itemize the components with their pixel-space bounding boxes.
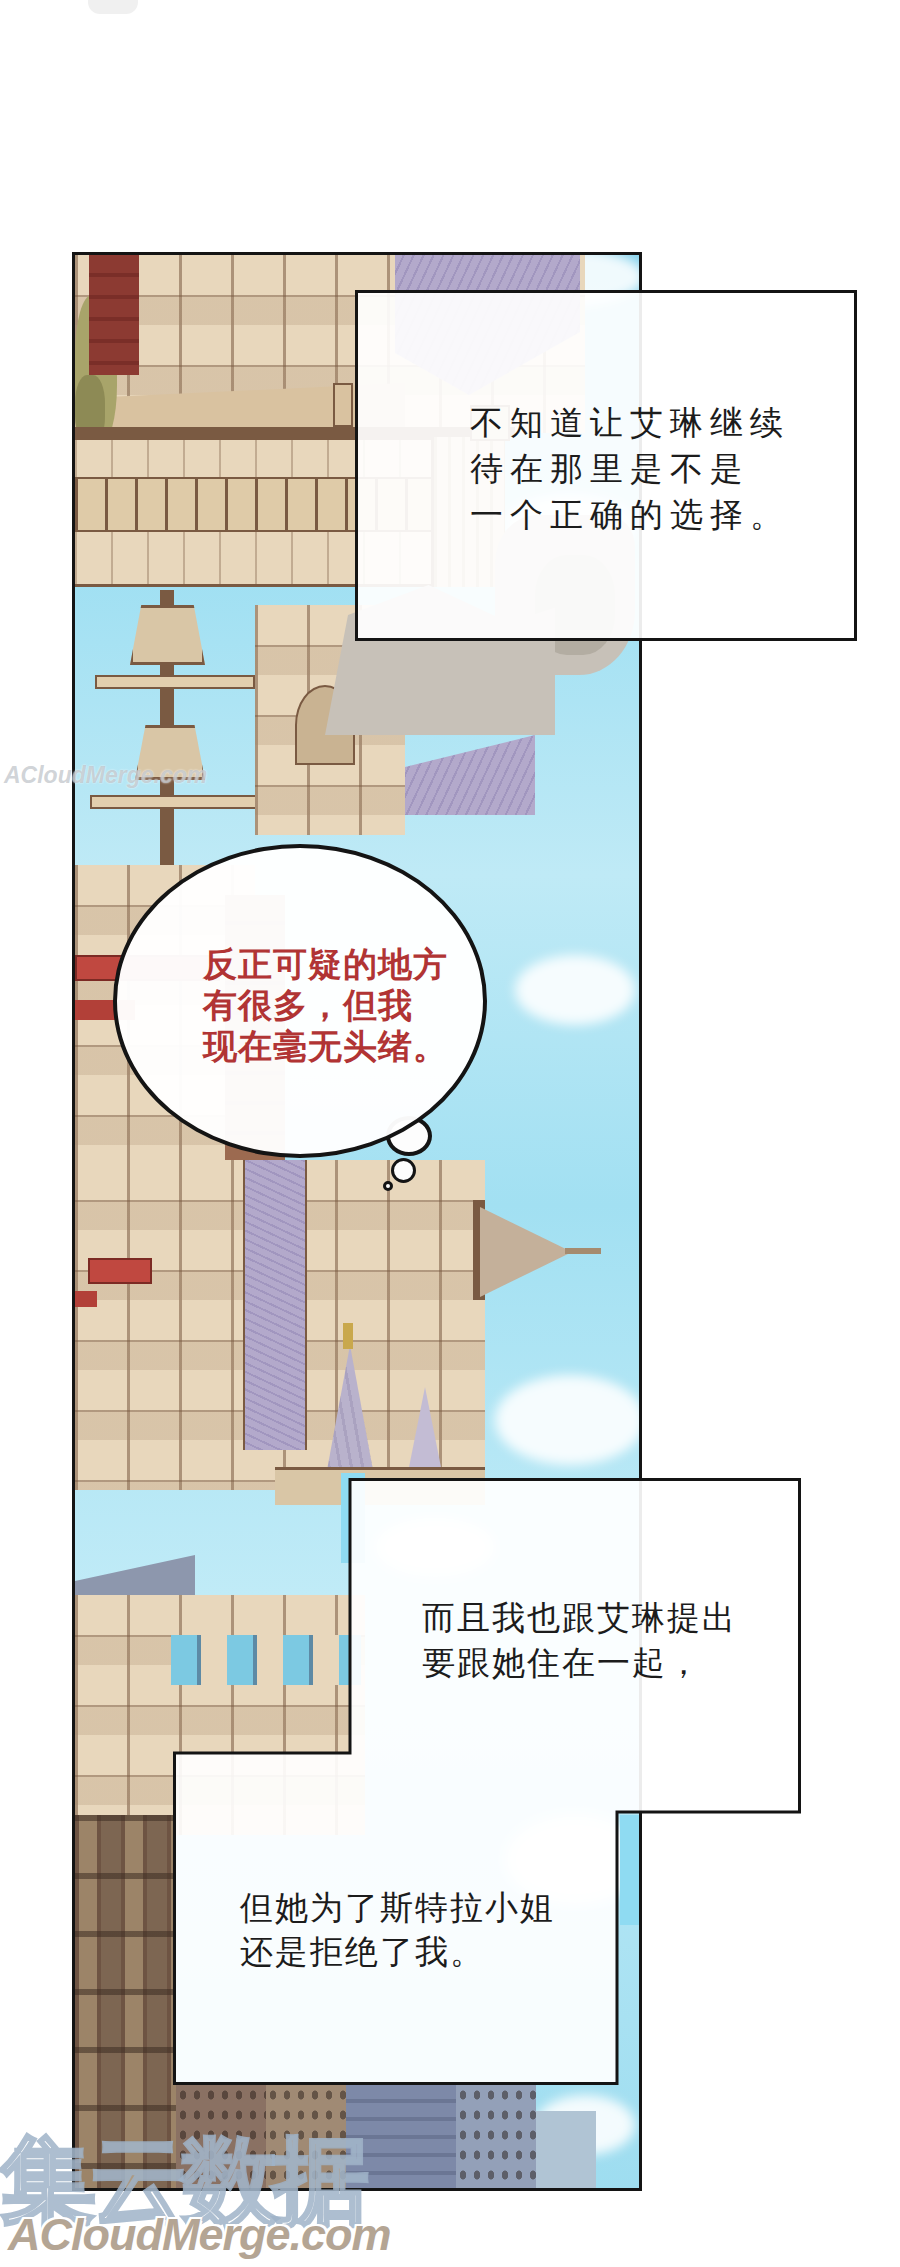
spire-tip (565, 1248, 601, 1254)
speech-line: 还是拒绝了我。 (240, 1930, 555, 1974)
beam (95, 675, 255, 689)
speech-box-top: 不知道让艾琳继续 待在那里是不是 一个正确的选择。 (355, 290, 857, 641)
speech-line: 而且我也跟艾琳提出 (422, 1596, 737, 1641)
speech-text-middle: 而且我也跟艾琳提出 要跟她住在一起， (422, 1596, 737, 1686)
mauve-roof-column (243, 1160, 307, 1450)
red-banner (75, 1291, 97, 1307)
cloud (515, 955, 635, 1025)
small-banner (333, 383, 353, 427)
cloud (495, 1375, 642, 1465)
bubble-line: 有很多，但我 (203, 985, 448, 1026)
mauve-roof (405, 735, 535, 815)
speech-line: 要跟她住在一起， (422, 1641, 737, 1686)
speech-line: 待在那里是不是 (470, 446, 790, 492)
thought-bubble: 反正可疑的地方 有很多，但我 现在毫无头绪。 (113, 844, 487, 1158)
bubble-tail-circle (391, 1158, 416, 1183)
speech-line: 不知道让艾琳继续 (470, 400, 790, 446)
building-slate (456, 2085, 536, 2191)
speech-line: 但她为了斯特拉小姐 (240, 1886, 555, 1930)
bubble-line: 反正可疑的地方 (203, 944, 448, 985)
red-banner (88, 1258, 152, 1284)
spire-right (480, 1207, 572, 1297)
lantern (130, 605, 205, 665)
side-watermark: ACloudMerge.com (4, 762, 207, 789)
building-far (536, 2111, 596, 2191)
bubble-tail-dot (383, 1181, 393, 1191)
beam (90, 795, 260, 809)
page-top-blob (88, 0, 138, 14)
gold-finial (343, 1323, 353, 1349)
bottom-watermark-en: ACloudMerge.com (8, 2209, 391, 2261)
bubble-line: 现在毫无头绪。 (203, 1026, 448, 1067)
speech-line: 一个正确的选择。 (470, 492, 790, 538)
maroon-structure (89, 255, 139, 375)
speech-text-bottom: 但她为了斯特拉小姐 还是拒绝了我。 (240, 1886, 555, 1974)
speech-box-union (173, 1478, 801, 2085)
